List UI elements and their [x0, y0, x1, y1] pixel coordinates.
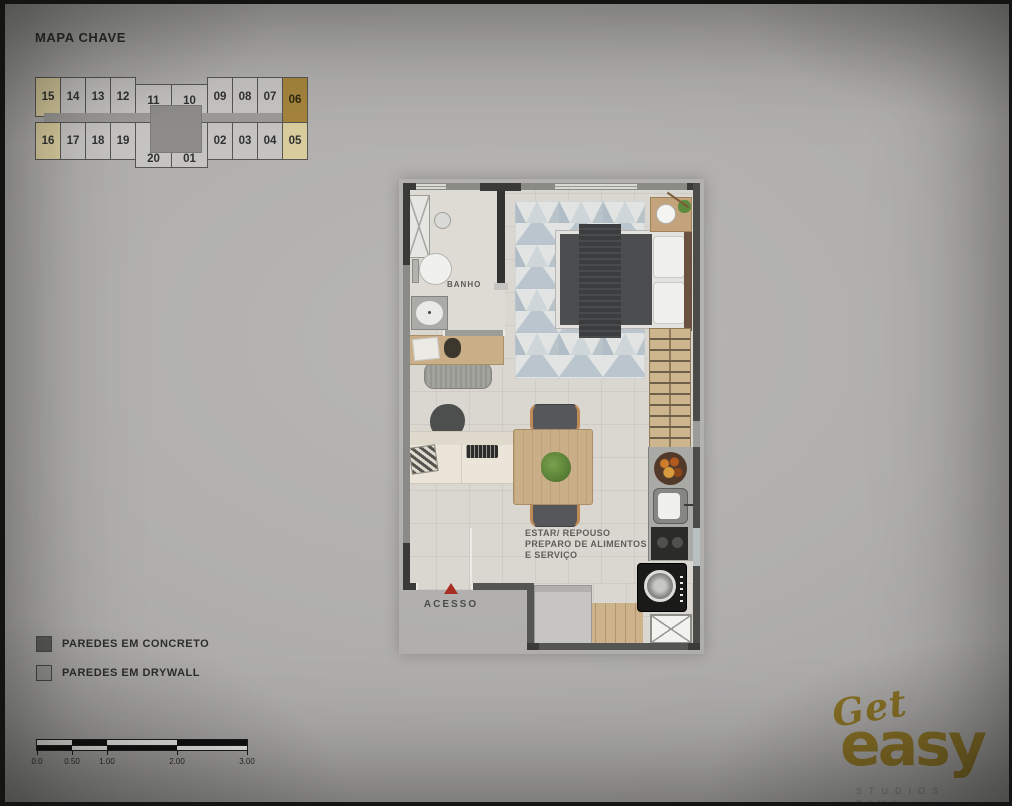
clothes-rack [649, 328, 691, 455]
wall-extension-left [527, 583, 534, 650]
page-title: MAPA CHAVE [35, 30, 126, 45]
toilet-tank [412, 259, 419, 283]
scale-segment [177, 746, 247, 750]
wall-segment [527, 643, 539, 650]
keymap-unit-02: 02 [207, 122, 233, 160]
wall-bathroom-partition [497, 190, 505, 285]
keymap-unit-03: 03 [232, 122, 258, 160]
scale-label: 0.50 [64, 757, 80, 766]
wall-segment [693, 421, 700, 447]
shower-stall [408, 195, 430, 258]
wall-segment [403, 583, 416, 590]
living-area-label: ESTAR/ REPOUSO PREPARO DE ALIMENTOS E SE… [525, 528, 647, 561]
legend-label: PAREDES EM DRYWALL [62, 667, 200, 679]
window-bathroom [416, 184, 446, 189]
scale-segment [107, 746, 177, 750]
washer-drum [644, 570, 676, 602]
wall-segment [403, 183, 410, 265]
keymap-unit-12: 12 [110, 77, 136, 117]
shower-head [434, 212, 451, 229]
nightstand-lamp [656, 204, 676, 224]
access-arrow [444, 583, 458, 594]
desk-plant [444, 338, 461, 358]
wall-legend: PAREDES EM CONCRETOPAREDES EM DRYWALL [36, 636, 209, 694]
page-edge-bottom [0, 802, 1012, 806]
scale-label: 2.00 [169, 757, 185, 766]
desk-laptop [412, 337, 440, 362]
keymap-unit-07: 07 [257, 77, 283, 117]
access-label: ACESSO [424, 599, 478, 610]
burner-left [657, 537, 668, 548]
window-kitchen [693, 528, 700, 566]
page-edge-top [0, 0, 1012, 4]
keymap: 15141312111009080706 1617181920010203040… [35, 77, 317, 169]
living-label-line2: PREPARO DE ALIMENTOS [525, 539, 647, 550]
legend-swatch [36, 636, 52, 652]
washing-machine [637, 563, 687, 612]
keymap-unit-04: 04 [257, 122, 283, 160]
keymap-unit-17: 17 [60, 122, 86, 160]
scale-label: 0.0 [31, 757, 42, 766]
scale-tick [72, 751, 73, 755]
legend-item-0: PAREDES EM CONCRETO [36, 636, 209, 652]
sofa-cushion-divider [461, 445, 462, 483]
table-centerpiece-plant [541, 452, 571, 482]
kitchen-sink-basin [658, 493, 680, 519]
scale-label: 3.00 [239, 757, 255, 766]
scale-tick [107, 751, 108, 755]
bed-throw-drape [579, 224, 621, 338]
wall-bathroom-bottom [443, 330, 505, 336]
keymap-unit-13: 13 [85, 77, 111, 117]
keymap-unit-18: 18 [85, 122, 111, 160]
scale-bar-body [36, 739, 248, 751]
living-label-line1: ESTAR/ REPOUSO [525, 528, 647, 539]
legend-swatch [36, 665, 52, 681]
keymap-unit-05: 05 [282, 122, 308, 160]
keymap-unit-08: 08 [232, 77, 258, 117]
bed-pillow-bottom [653, 282, 685, 324]
bathroom-label: BANHO [447, 280, 481, 289]
wall-bottom-left [473, 583, 534, 590]
sofa-pillow [408, 444, 438, 474]
shaft-box [650, 614, 692, 644]
floorplan: BANHO [403, 183, 700, 650]
scale-tick [247, 751, 248, 755]
brand-logo: Get easy STUDIOS RIVA [818, 684, 1008, 806]
entry-cabinet [534, 585, 592, 645]
scale-bar: 0.00.501.002.003.00 [36, 739, 266, 767]
logo-main-word: easy [840, 710, 984, 780]
scale-tick [37, 751, 38, 755]
wall-top [403, 183, 700, 190]
cooktop [651, 527, 688, 560]
scale-segment [37, 746, 72, 750]
burner-right [672, 537, 683, 548]
scale-segment [72, 746, 107, 750]
keymap-unit-16: 16 [35, 122, 61, 160]
floor-service-wood [585, 603, 643, 647]
scale-tick [177, 751, 178, 755]
legend-item-1: PAREDES EM DRYWALL [36, 665, 209, 681]
living-label-line3: E SERVIÇO [525, 550, 647, 561]
logo-subtitle-studios: STUDIOS [856, 786, 945, 796]
desk-chair [424, 362, 492, 389]
door-jamb [416, 583, 418, 590]
keymap-elevator-core [150, 105, 202, 153]
wall-extension-bottom [527, 643, 700, 650]
scale-bar-row-bottom [37, 745, 247, 750]
wall-right [693, 183, 700, 650]
window-bedroom [555, 184, 637, 189]
keymap-unit-19: 19 [110, 122, 136, 160]
fruit-bowl [654, 452, 687, 485]
legend-label: PAREDES EM CONCRETO [62, 638, 209, 650]
keymap-unit-15: 15 [35, 77, 61, 117]
sofa-remote [466, 445, 498, 458]
keymap-unit-09: 09 [207, 77, 233, 117]
sink-drain [428, 311, 431, 314]
keymap-unit-14: 14 [60, 77, 86, 117]
page-edge-left [0, 0, 5, 806]
bed-pillow-top [653, 236, 685, 278]
wall-segment [494, 283, 508, 290]
keymap-unit-06: 06 [282, 77, 308, 123]
scale-label: 1.00 [99, 757, 115, 766]
entry-door-leaf [470, 528, 472, 583]
washer-controls [680, 572, 683, 602]
brochure-page: MAPA CHAVE 15141312111009080706 16171819… [0, 0, 1012, 806]
bed-headboard [684, 228, 692, 331]
wall-segment [688, 643, 700, 650]
